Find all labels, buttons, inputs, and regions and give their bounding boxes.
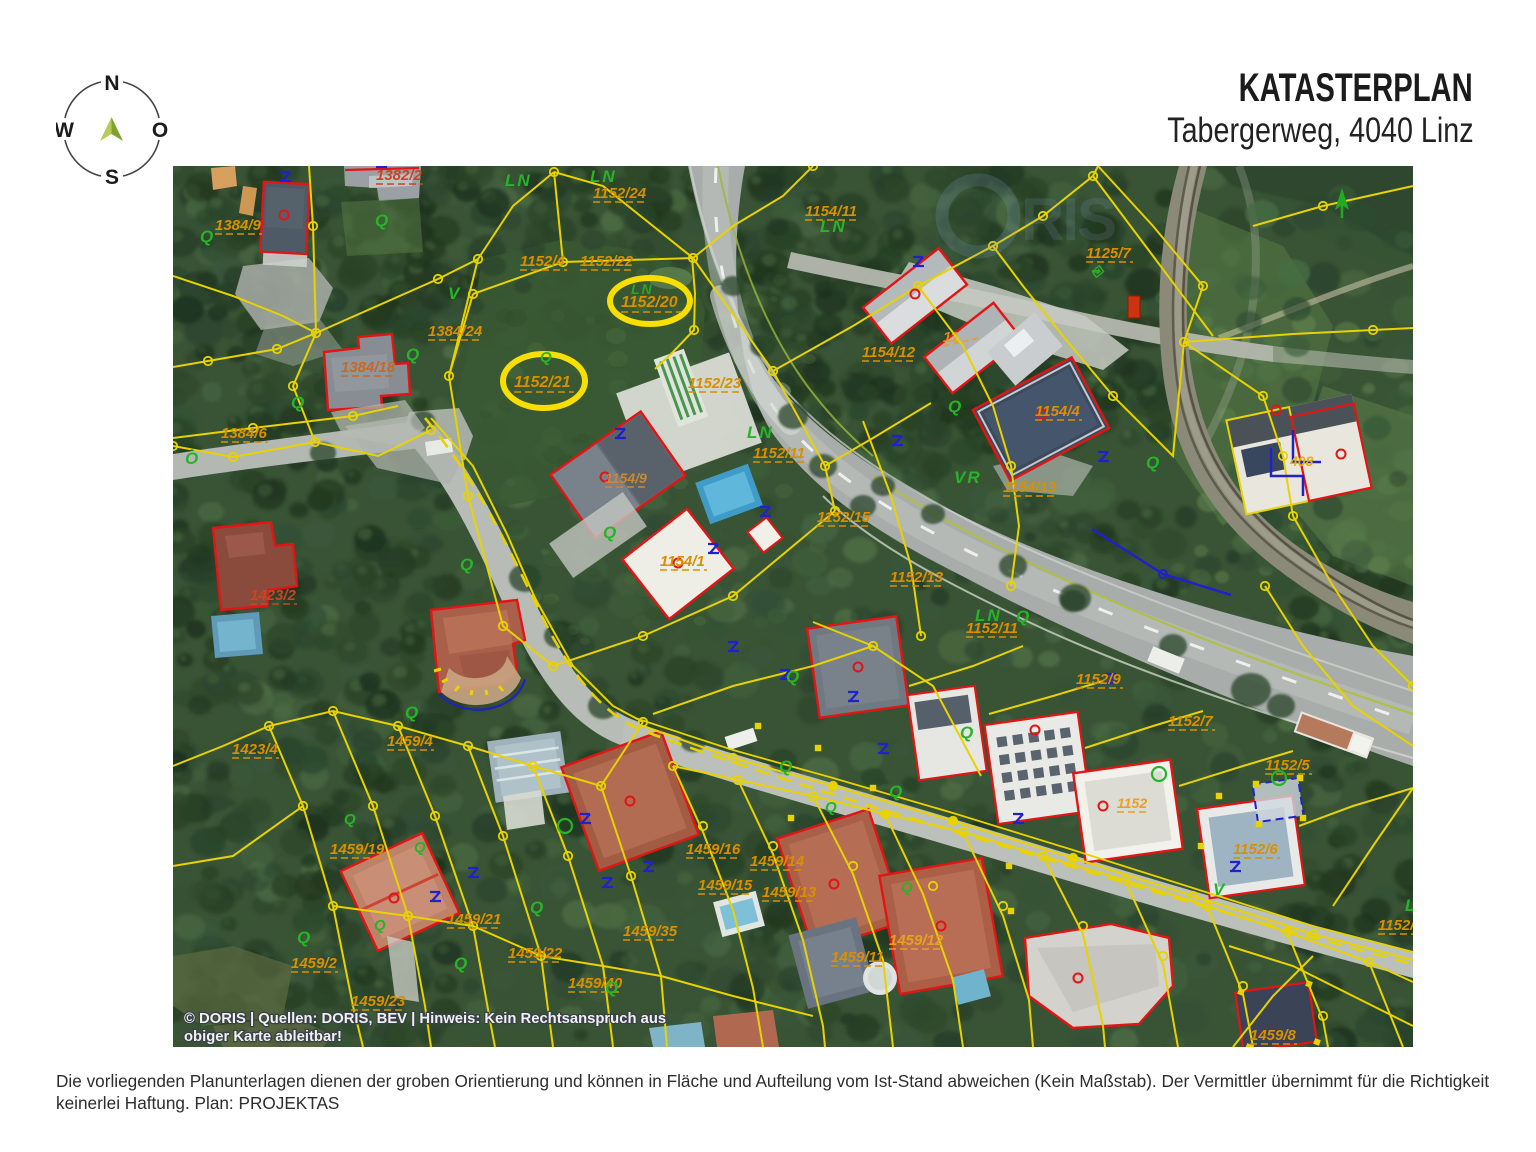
- svg-text:N: N: [104, 73, 119, 95]
- svg-text:⎆: ⎆: [1091, 263, 1105, 280]
- svg-text:1459/12: 1459/12: [889, 932, 944, 949]
- svg-text:Q: Q: [291, 393, 306, 412]
- svg-text:Q: Q: [779, 757, 794, 776]
- svg-text:1154/1: 1154/1: [660, 553, 705, 570]
- svg-text:1152/9: 1152/9: [1076, 671, 1121, 688]
- svg-text:obiger Karte ableitbar!: obiger Karte ableitbar!: [184, 1029, 342, 1045]
- svg-text:1152/24: 1152/24: [593, 185, 647, 202]
- svg-text:VR: VR: [954, 468, 982, 487]
- svg-text:1384/24: 1384/24: [428, 323, 483, 340]
- svg-text:1459/2: 1459/2: [291, 955, 338, 972]
- svg-text:Ò: Ò: [185, 449, 200, 468]
- svg-text:1154/12: 1154/12: [862, 344, 916, 361]
- svg-text:Q: Q: [530, 898, 545, 917]
- svg-text:1152: 1152: [1117, 795, 1147, 811]
- svg-text:Q: Q: [344, 811, 358, 828]
- svg-text:Q: Q: [960, 723, 975, 742]
- svg-text:1459/16: 1459/16: [686, 841, 741, 858]
- svg-text:1459/15: 1459/15: [698, 877, 753, 894]
- svg-text:Q: Q: [406, 345, 421, 364]
- svg-text:Q: Q: [454, 954, 469, 973]
- svg-text:1152/11: 1152/11: [753, 445, 805, 462]
- svg-text:1152/4: 1152/4: [520, 253, 565, 270]
- svg-text:1384/18: 1384/18: [341, 359, 396, 376]
- svg-text:Q: Q: [889, 782, 904, 801]
- svg-text:O: O: [152, 119, 168, 142]
- svg-text:Q: Q: [825, 799, 839, 816]
- svg-text:W: W: [56, 119, 74, 142]
- svg-text:Q: Q: [540, 349, 554, 366]
- svg-text:1459/8: 1459/8: [1250, 1027, 1297, 1044]
- svg-text:LN: LN: [747, 423, 774, 442]
- svg-text:1154/9: 1154/9: [605, 470, 647, 486]
- svg-text:1154/13: 1154/13: [1003, 479, 1057, 496]
- svg-text:1384/9: 1384/9: [215, 217, 262, 234]
- svg-text:1154/4: 1154/4: [1035, 403, 1080, 420]
- svg-text:Q: Q: [297, 928, 312, 947]
- svg-text:V: V: [448, 284, 461, 303]
- svg-text:Q: Q: [786, 667, 801, 686]
- svg-text:1459/4: 1459/4: [387, 733, 434, 750]
- svg-text:1459/35: 1459/35: [623, 923, 678, 940]
- svg-text:Q: Q: [414, 839, 428, 856]
- svg-text:Q: Q: [200, 227, 215, 246]
- svg-text:1459/23: 1459/23: [351, 993, 406, 1010]
- svg-text:1152/21: 1152/21: [514, 374, 571, 391]
- svg-text:1152/1: 1152/1: [1378, 917, 1413, 934]
- svg-text:1152/15: 1152/15: [817, 509, 871, 526]
- svg-text:Q: Q: [374, 917, 388, 934]
- svg-text:1459/14: 1459/14: [750, 853, 805, 870]
- svg-text:Q: Q: [375, 211, 390, 230]
- svg-text:1152/6: 1152/6: [1233, 841, 1278, 858]
- svg-text:1152/20: 1152/20: [621, 294, 678, 311]
- svg-text:© DORIS | Quellen: DORIS, BEV: © DORIS | Quellen: DORIS, BEV | Hinweis:…: [184, 1011, 666, 1027]
- svg-text:1459/13: 1459/13: [762, 884, 817, 901]
- svg-text:Q: Q: [901, 879, 915, 896]
- svg-text:S: S: [105, 166, 119, 185]
- svg-text:Q: Q: [603, 523, 618, 542]
- svg-text:408: 408: [1289, 453, 1314, 469]
- svg-text:LN: LN: [590, 167, 617, 186]
- svg-text:LN: LN: [975, 606, 1002, 625]
- svg-text:Q: Q: [1016, 607, 1031, 626]
- svg-text:LN: LN: [505, 171, 532, 190]
- svg-text:1423/2: 1423/2: [250, 587, 297, 604]
- svg-text:1152/13: 1152/13: [890, 569, 944, 586]
- svg-text:1459/11: 1459/11: [831, 949, 884, 966]
- svg-text:1459/21: 1459/21: [447, 911, 501, 928]
- svg-text:Q: Q: [605, 978, 620, 997]
- svg-text:Q: Q: [460, 555, 475, 574]
- svg-text:Q: Q: [405, 703, 420, 722]
- svg-text:1459/22: 1459/22: [508, 945, 563, 962]
- svg-text:1152/7: 1152/7: [1168, 713, 1213, 730]
- svg-text:1152/23: 1152/23: [688, 375, 742, 392]
- svg-text:LN: LN: [820, 217, 847, 236]
- svg-text:V: V: [1213, 880, 1226, 899]
- svg-text:RIS: RIS: [1021, 186, 1115, 253]
- svg-text:1384/6: 1384/6: [221, 425, 268, 442]
- svg-text:1382/2: 1382/2: [376, 167, 423, 184]
- svg-text:Q: Q: [1146, 453, 1161, 472]
- svg-text:1423/4: 1423/4: [232, 741, 279, 758]
- svg-text:1152/5: 1152/5: [1265, 757, 1310, 774]
- svg-text:Q: Q: [948, 397, 963, 416]
- svg-text:1459/19: 1459/19: [330, 841, 385, 858]
- svg-text:L: L: [1405, 896, 1413, 915]
- svg-text:1152/22: 1152/22: [580, 253, 634, 270]
